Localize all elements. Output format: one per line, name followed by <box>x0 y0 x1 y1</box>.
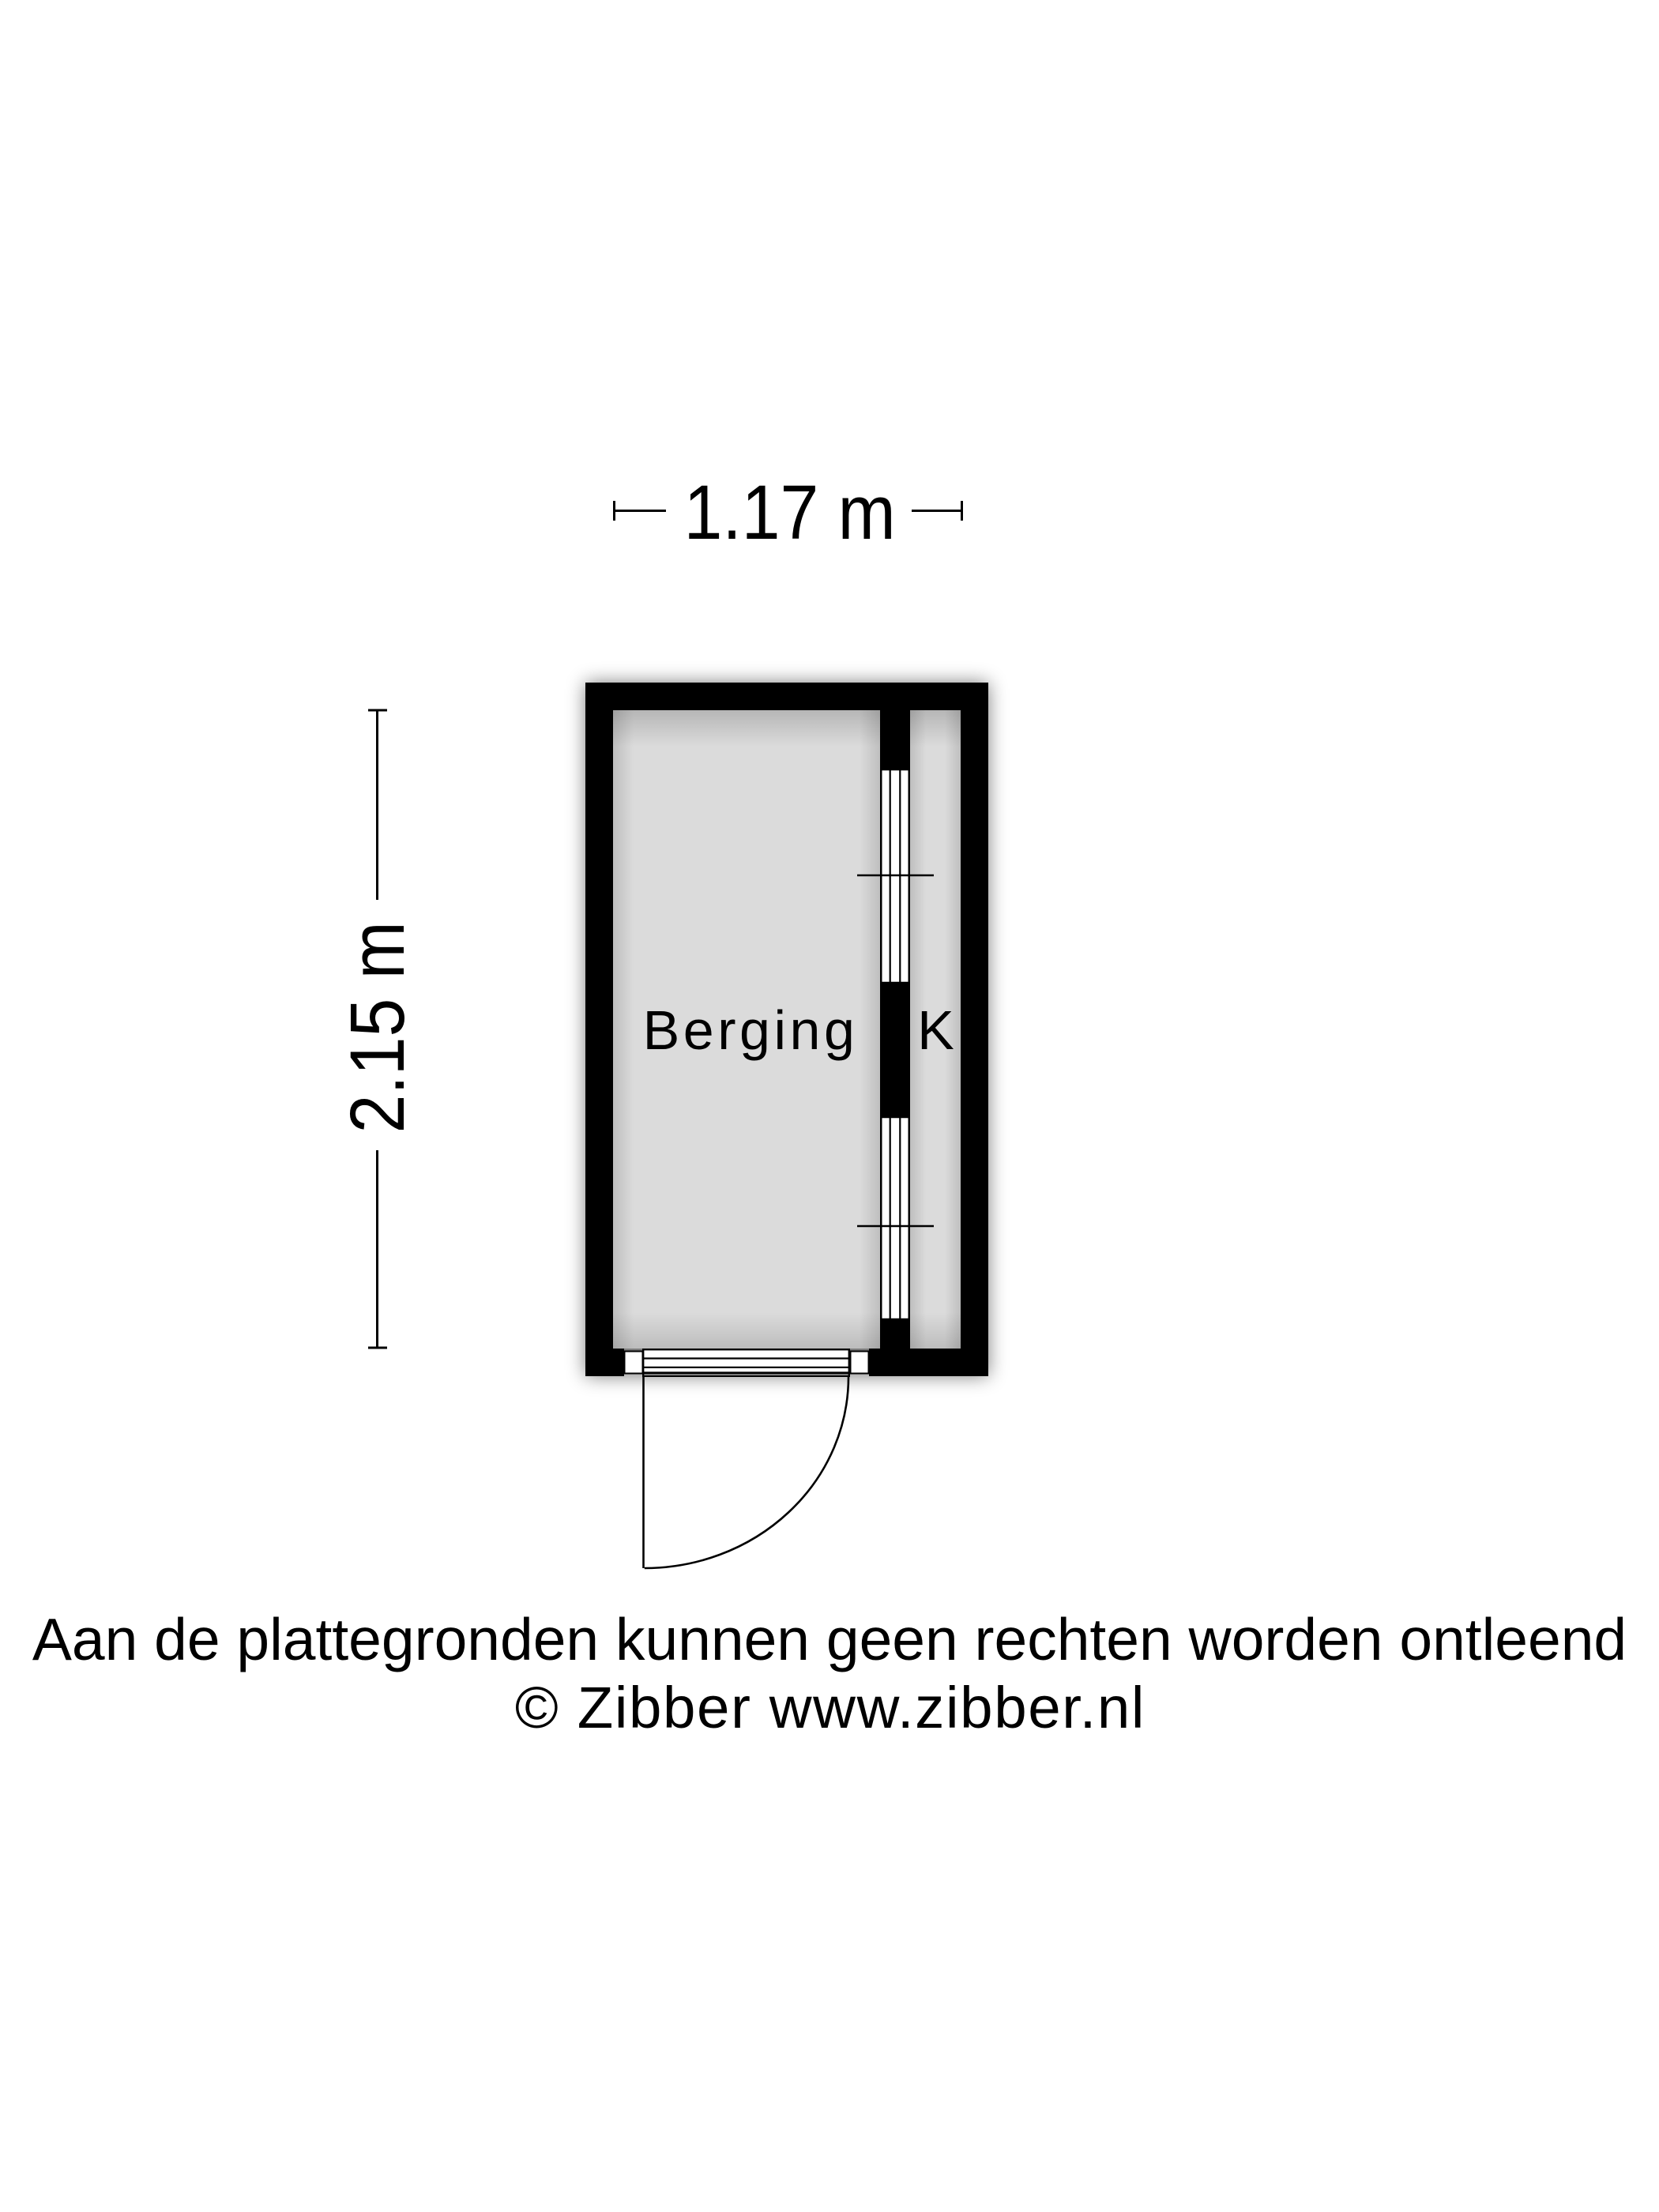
svg-text:1.17 m: 1.17 m <box>684 469 896 555</box>
svg-text:K: K <box>917 999 954 1061</box>
svg-text:© Zibber www.zibber.nl: © Zibber www.zibber.nl <box>515 1675 1145 1740</box>
svg-text:2.15 m: 2.15 m <box>334 921 420 1133</box>
svg-text:Aan de plattegronden kunnen ge: Aan de plattegronden kunnen geen rechten… <box>32 1606 1627 1672</box>
svg-text:Berging: Berging <box>643 999 859 1061</box>
